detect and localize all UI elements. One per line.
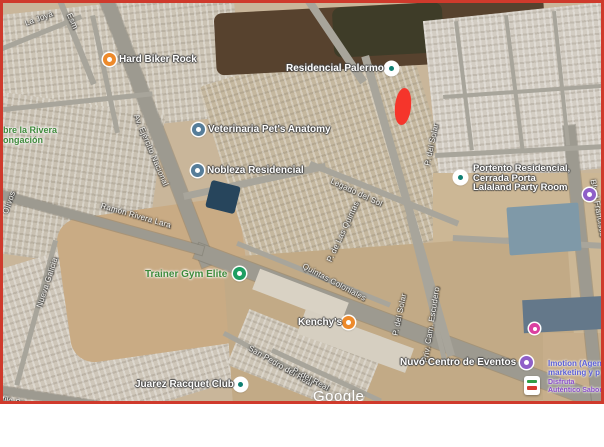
place-icon[interactable] [454, 171, 467, 184]
bar-glyph [107, 57, 112, 62]
park-label-line1: bre la Rivera [3, 125, 57, 135]
google-watermark: Google [313, 388, 364, 404]
party-room-icon[interactable] [583, 188, 596, 201]
place-dot [238, 382, 243, 387]
pink-marker-icon[interactable] [529, 323, 540, 334]
disfruta-line1: Disfruta [548, 379, 602, 387]
place-icon[interactable] [234, 378, 247, 391]
residential-icon[interactable] [191, 164, 204, 177]
restaurant-icon[interactable] [342, 316, 355, 329]
poi-label-hard-biker-rock[interactable]: Hard Biker Rock [119, 54, 197, 65]
imotion-line2: marketing y p [548, 368, 602, 377]
gym-icon[interactable] [233, 267, 246, 280]
place-dot [458, 175, 463, 180]
bar-icon[interactable] [103, 53, 116, 66]
house-glyph [524, 360, 529, 365]
marker-dot [533, 327, 537, 331]
home-glyph [195, 168, 200, 173]
poi-label-nobleza[interactable]: Nobleza Residencial [207, 165, 304, 176]
poi-label-kenchys[interactable]: Kenchy's [298, 317, 342, 328]
satellite-map[interactable]: La Joya Esm Av. Ejército Nacional Ramón … [0, 0, 604, 404]
place-dot [389, 66, 394, 71]
poi-label-nuvo[interactable]: Nuvó Centro de Eventos [400, 357, 516, 368]
paw-glyph [196, 127, 201, 132]
fork-knife-glyph [346, 320, 351, 325]
park-label[interactable]: bre la Rivera ongación [3, 125, 57, 145]
poi-label-veterinaria[interactable]: Veterinaria Pet's Anatomy [208, 124, 331, 135]
poi-label-juarez-racquet[interactable]: Juarez Racquet Club [135, 379, 234, 390]
place-icon[interactable] [385, 62, 398, 75]
portento-line3: Lalaland Party Room [473, 183, 570, 193]
poi-label-portento[interactable]: Portento Residencial, Cerrada Porta Lala… [473, 164, 570, 193]
veterinary-icon[interactable] [192, 123, 205, 136]
dumbbell-glyph [237, 271, 242, 276]
park-label-line2: ongación [3, 135, 57, 145]
business-logo-icon[interactable] [524, 376, 540, 395]
poi-label-residencial-palermo[interactable]: Residencial Palermo [286, 63, 384, 74]
ad-label-disfruta[interactable]: Disfruta Auténtico Sabor [548, 379, 602, 395]
building [506, 203, 581, 256]
events-venue-icon[interactable] [520, 356, 533, 369]
disfruta-line2: Auténtico Sabor [548, 387, 602, 395]
logo-stripe [527, 386, 537, 390]
logo-stripe [527, 380, 537, 383]
ad-label-imotion[interactable]: Imotion (Agen marketing y p [548, 359, 602, 377]
house-glyph [587, 192, 592, 197]
imotion-line1: Imotion (Agen [548, 359, 602, 368]
poi-label-trainer-gym[interactable]: Trainer Gym Elite [145, 269, 227, 280]
